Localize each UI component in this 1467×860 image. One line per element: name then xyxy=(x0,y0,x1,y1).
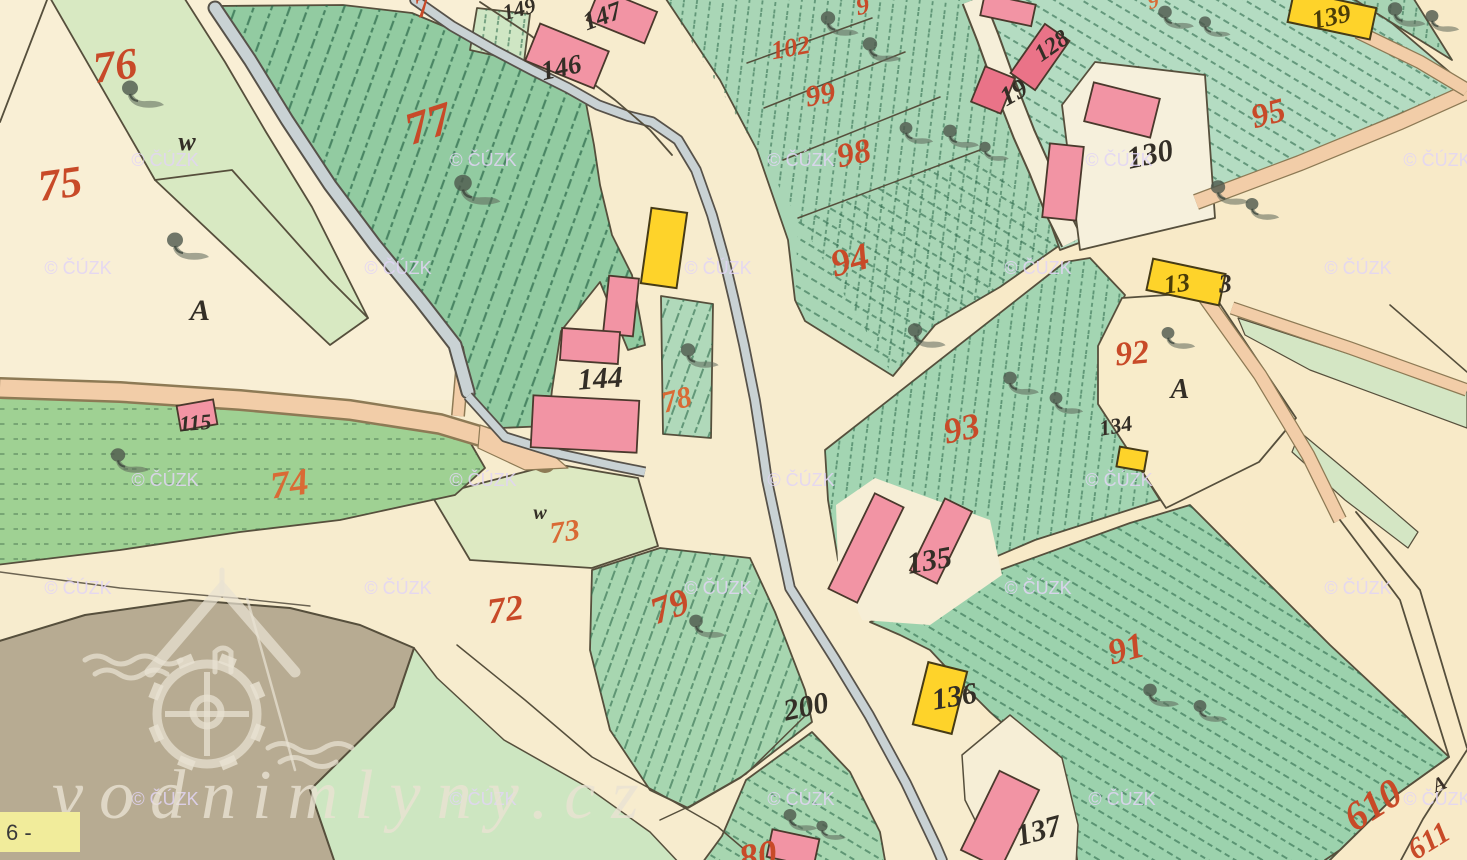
svg-text:99: 99 xyxy=(803,76,838,114)
svg-text:vodnimlyny.cz: vodnimlyny.cz xyxy=(52,757,655,834)
svg-text:74: 74 xyxy=(268,461,311,508)
svg-text:© ČÚZK: © ČÚZK xyxy=(131,149,198,170)
svg-text:75: 75 xyxy=(35,156,85,211)
svg-text:© ČÚZK: © ČÚZK xyxy=(1088,788,1155,809)
svg-text:115: 115 xyxy=(178,409,212,437)
svg-text:© ČÚZK: © ČÚZK xyxy=(131,469,198,490)
svg-text:© ČÚZK: © ČÚZK xyxy=(1324,577,1391,598)
svg-text:© ČÚZK: © ČÚZK xyxy=(767,469,834,490)
svg-text:A: A xyxy=(1169,374,1190,405)
svg-text:© ČÚZK: © ČÚZK xyxy=(1004,257,1071,278)
svg-text:© ČÚZK: © ČÚZK xyxy=(364,257,431,278)
svg-text:© ČÚZK: © ČÚZK xyxy=(1403,149,1467,170)
svg-text:© ČÚZK: © ČÚZK xyxy=(44,257,111,278)
svg-text:© ČÚZK: © ČÚZK xyxy=(767,149,834,170)
svg-text:3: 3 xyxy=(1217,269,1233,299)
svg-text:© ČÚZK: © ČÚZK xyxy=(364,577,431,598)
svg-text:© ČÚZK: © ČÚZK xyxy=(684,257,751,278)
svg-text:© ČÚZK: © ČÚZK xyxy=(684,577,751,598)
svg-text:© ČÚZK: © ČÚZK xyxy=(1403,788,1467,809)
svg-text:73: 73 xyxy=(548,513,582,550)
svg-text:72: 72 xyxy=(485,587,526,632)
svg-text:© ČÚZK: © ČÚZK xyxy=(44,577,111,598)
svg-text:© ČÚZK: © ČÚZK xyxy=(1085,149,1152,170)
svg-text:13: 13 xyxy=(1162,267,1192,299)
svg-text:© ČÚZK: © ČÚZK xyxy=(1004,577,1071,598)
svg-text:92: 92 xyxy=(1114,334,1151,374)
svg-text:76: 76 xyxy=(90,38,140,93)
svg-text:© ČÚZK: © ČÚZK xyxy=(1324,257,1391,278)
svg-text:6 -: 6 - xyxy=(6,820,32,845)
svg-text:w: w xyxy=(533,502,547,524)
svg-text:© ČÚZK: © ČÚZK xyxy=(449,149,516,170)
svg-text:© ČÚZK: © ČÚZK xyxy=(449,469,516,490)
svg-text:A: A xyxy=(188,294,210,327)
svg-text:© ČÚZK: © ČÚZK xyxy=(1085,469,1152,490)
svg-text:144: 144 xyxy=(577,360,624,396)
svg-text:© ČÚZK: © ČÚZK xyxy=(767,788,834,809)
